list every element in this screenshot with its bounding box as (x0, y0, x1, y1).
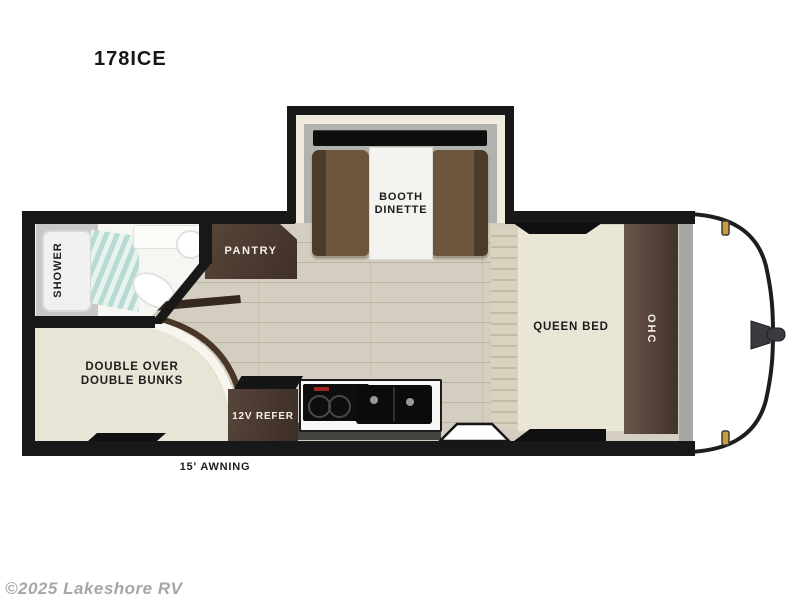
entry-door (440, 424, 509, 441)
bedroom-window-front (514, 429, 606, 441)
floorplan-canvas: 178ICE BOOTH DINETTE SHOWER PANTRY (0, 0, 800, 600)
bunk-window (88, 433, 166, 441)
awning-label: 15' AWNING (140, 461, 290, 474)
walls-and-openings (0, 0, 800, 600)
bedroom-window-top (513, 223, 602, 234)
copyright-watermark: ©2025 Lakeshore RV (5, 579, 182, 599)
exterior-walls (22, 211, 695, 456)
interior-walls (22, 211, 213, 328)
